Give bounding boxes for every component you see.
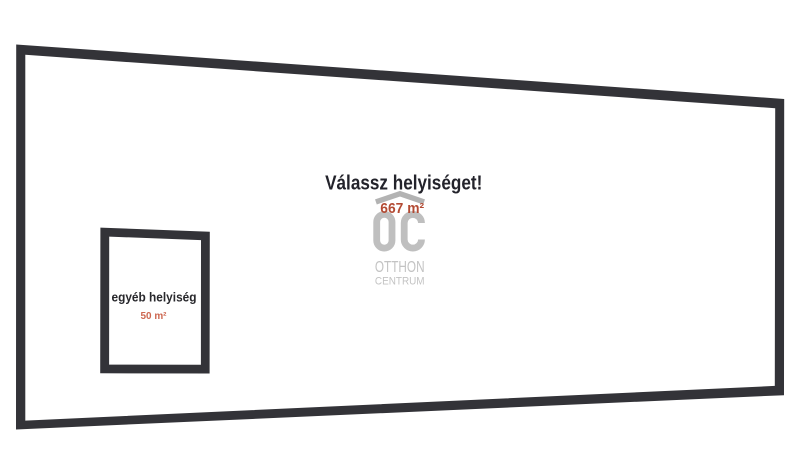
svg-text:CENTRUM: CENTRUM [375,276,425,288]
svg-text:667 m²: 667 m² [380,201,424,217]
svg-text:Válassz helyiséget!: Válassz helyiséget! [325,171,482,194]
svg-text:50 m²: 50 m² [141,311,168,322]
svg-text:egyéb helyiség: egyéb helyiség [112,291,197,305]
svg-text:OTTHON: OTTHON [375,259,425,276]
